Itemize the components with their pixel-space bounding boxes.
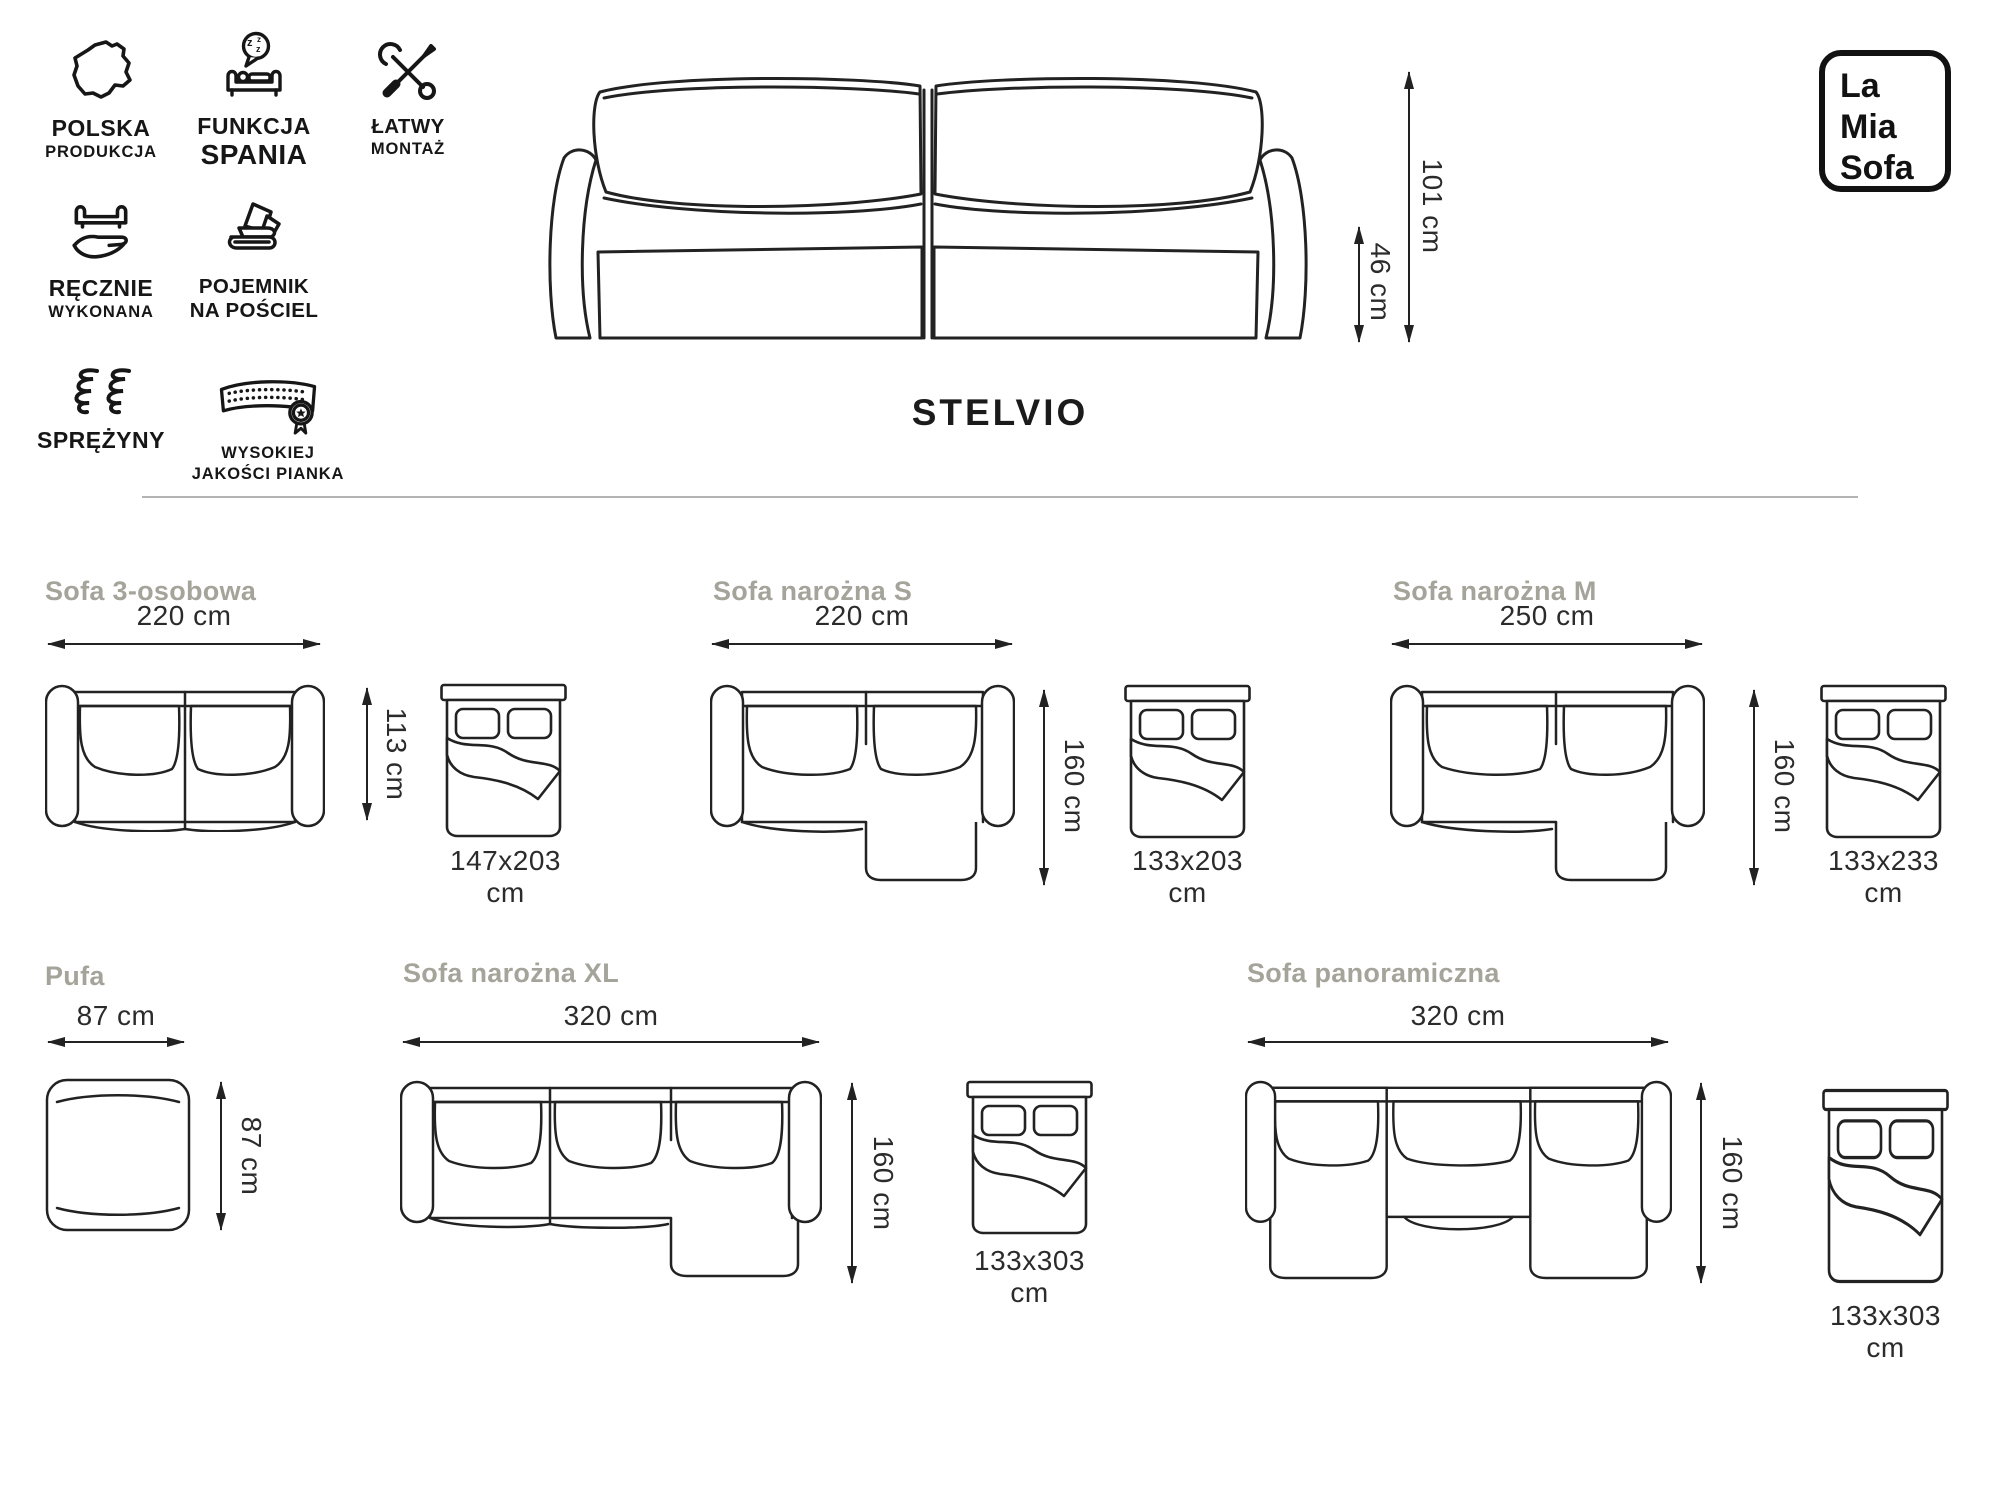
svg-text:z: z [257, 35, 261, 44]
bed-size-drawing [440, 683, 567, 838]
bed-size-drawing [1820, 684, 1947, 839]
feature-sublabel: JAKOŚCI PIANKA [192, 464, 344, 485]
depth-dimension-arrow [1700, 1083, 1702, 1283]
svg-text:z: z [247, 37, 253, 49]
feature-funkcja-spania: z z z FUNKCJA SPANIA [180, 30, 328, 170]
width-dimension-label: 320 cm [403, 1000, 819, 1032]
feature-label: ŁATWY [371, 115, 445, 139]
svg-text:z: z [256, 44, 261, 54]
pouf-top-view-drawing [45, 1078, 191, 1232]
sofa-top-view-drawing [710, 682, 1015, 882]
seat-height-arrow [1358, 227, 1360, 342]
depth-dimension-label: 160 cm [1716, 1136, 1748, 1231]
feature-latwy-montaz: ŁATWY MONTAŻ [348, 36, 468, 160]
width-dimension-arrow [1248, 1041, 1668, 1043]
feature-sublabel: MONTAŻ [371, 139, 445, 160]
bed-size-label: 133x303 cm [952, 1245, 1107, 1309]
feature-label: FUNKCJA [197, 113, 310, 140]
depth-dimension-label: 87 cm [235, 1117, 267, 1196]
feature-sprezyny: SPRĘŻYNY [35, 366, 167, 454]
width-dimension-label: 220 cm [48, 600, 320, 632]
width-dimension-label: 250 cm [1392, 600, 1702, 632]
brand-line-1: La [1840, 66, 1935, 107]
depth-dimension-arrow [1043, 690, 1045, 885]
feature-label: RĘCZNIE [48, 275, 153, 302]
depth-dimension-arrow [1753, 690, 1755, 885]
sofa-front-view-drawing [528, 40, 1328, 345]
bed-size-label: 133x303 cm [1808, 1300, 1963, 1364]
feature-sublabel: SPANIA [197, 140, 310, 170]
depth-dimension-label: 160 cm [1058, 739, 1090, 834]
poland-map-icon [65, 36, 137, 108]
springs-icon [67, 366, 135, 420]
feature-label: SPRĘŻYNY [37, 427, 165, 454]
feature-wysokiej-jakosci-pianka: WYSOKIEJ JAKOŚCI PIANKA [168, 372, 368, 485]
bed-size-drawing [966, 1080, 1093, 1235]
product-title: STELVIO [850, 392, 1150, 434]
tools-icon [372, 36, 444, 108]
sofa-top-view-drawing [45, 682, 325, 832]
bed-size-drawing [1124, 684, 1251, 839]
depth-dimension-arrow [851, 1083, 853, 1283]
feature-polska-produkcja: POLSKA PRODUKCJA [35, 36, 167, 163]
feature-sublabel: WYKONANA [48, 302, 153, 323]
variant-name: Pufa [45, 961, 105, 992]
section-divider [142, 496, 1858, 498]
feature-sublabel: NA POŚCIEL [190, 299, 319, 323]
total-height-arrow [1408, 72, 1410, 342]
width-dimension-arrow [712, 643, 1012, 645]
bedding-container-icon [215, 190, 293, 268]
feature-sublabel: PRODUKCJA [45, 142, 157, 163]
depth-dimension-arrow [220, 1082, 222, 1230]
width-dimension-label: 220 cm [712, 600, 1012, 632]
product-spec-sheet: POLSKA PRODUKCJA z z z FUNKCJA SPANIA [0, 0, 2000, 1500]
feature-label: POJEMNIK [190, 275, 319, 299]
width-dimension-label: 87 cm [48, 1000, 184, 1032]
feature-recznie-wykonana: RĘCZNIE WYKONANA [35, 194, 167, 323]
sofa-top-view-drawing [1245, 1078, 1672, 1282]
width-dimension-label: 320 cm [1248, 1000, 1668, 1032]
depth-dimension-label: 113 cm [380, 708, 412, 801]
feature-label: POLSKA [45, 115, 157, 142]
depth-dimension-arrow [366, 688, 368, 820]
sleep-function-icon: z z z [216, 30, 292, 106]
depth-dimension-label: 160 cm [1768, 739, 1800, 834]
width-dimension-arrow [1392, 643, 1702, 645]
bed-size-label: 147x203 cm [428, 845, 583, 909]
total-height-label: 101 cm [1416, 159, 1448, 254]
seat-height-label: 46 cm [1364, 243, 1396, 322]
bed-size-drawing [1822, 1088, 1949, 1284]
width-dimension-arrow [48, 643, 320, 645]
bed-size-label: 133x203 cm [1110, 845, 1265, 909]
foam-quality-icon [213, 372, 323, 436]
feature-label: WYSOKIEJ [192, 443, 344, 464]
brand-line-2: Mia [1840, 107, 1935, 148]
brand-line-3: Sofa [1840, 148, 1935, 189]
brand-logo: La Mia Sofa [1819, 50, 1951, 192]
handmade-icon [64, 194, 138, 268]
width-dimension-arrow [403, 1041, 819, 1043]
width-dimension-arrow [48, 1041, 184, 1043]
depth-dimension-label: 160 cm [867, 1136, 899, 1231]
variant-name: Sofa panoramiczna [1247, 958, 1500, 989]
variant-name: Sofa narożna XL [403, 958, 619, 989]
feature-pojemnik-na-posciel: POJEMNIK NA POŚCIEL [178, 190, 330, 323]
sofa-top-view-drawing [1390, 682, 1705, 882]
bed-size-label: 133x233 cm [1806, 845, 1961, 909]
sofa-top-view-drawing [400, 1078, 822, 1283]
